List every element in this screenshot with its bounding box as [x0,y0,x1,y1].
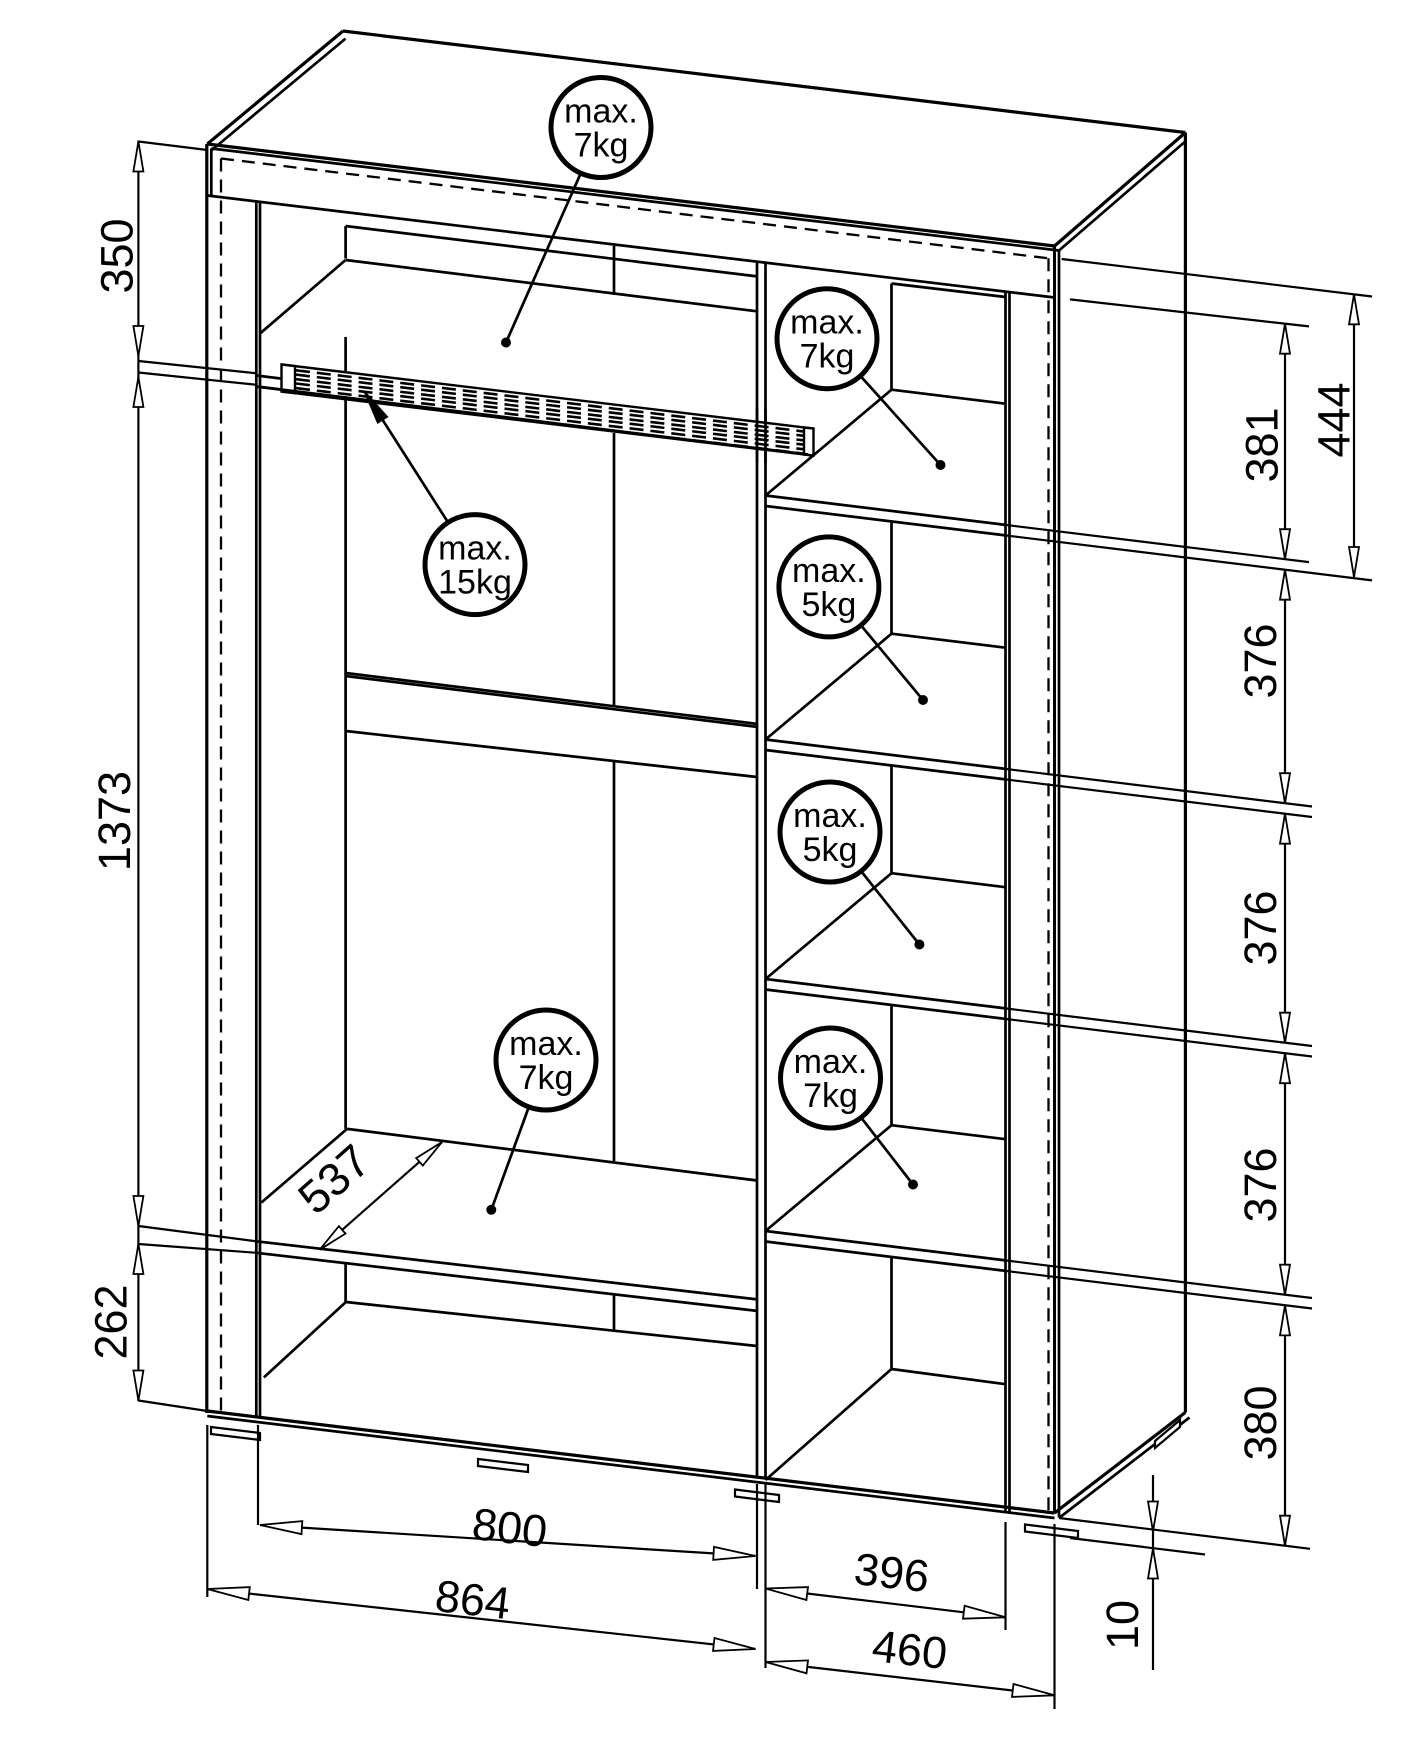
svg-text:381: 381 [1237,407,1288,482]
svg-text:max.: max. [790,304,864,342]
svg-text:max.: max. [564,93,638,131]
svg-text:7kg: 7kg [519,1059,574,1097]
svg-text:5kg: 5kg [803,831,858,869]
svg-text:max.: max. [792,552,866,590]
svg-text:15kg: 15kg [438,564,512,602]
svg-text:380: 380 [1235,1385,1286,1460]
svg-text:max.: max. [793,797,867,835]
svg-text:7kg: 7kg [803,1077,858,1115]
svg-text:7kg: 7kg [574,127,629,165]
svg-text:max.: max. [794,1043,868,1081]
svg-text:864: 864 [433,1570,513,1629]
svg-text:800: 800 [470,1498,550,1557]
svg-text:396: 396 [852,1543,932,1602]
svg-text:max.: max. [438,530,512,568]
svg-text:350: 350 [92,218,143,293]
svg-text:5kg: 5kg [801,586,856,624]
svg-text:460: 460 [870,1620,950,1679]
svg-text:376: 376 [1235,1147,1286,1222]
svg-text:max.: max. [509,1025,583,1063]
svg-text:10: 10 [1097,1600,1148,1650]
svg-text:376: 376 [1235,623,1286,698]
svg-text:444: 444 [1309,382,1360,457]
svg-text:1373: 1373 [89,771,140,871]
svg-text:262: 262 [86,1284,137,1359]
svg-text:376: 376 [1235,890,1286,965]
svg-text:7kg: 7kg [800,338,855,376]
